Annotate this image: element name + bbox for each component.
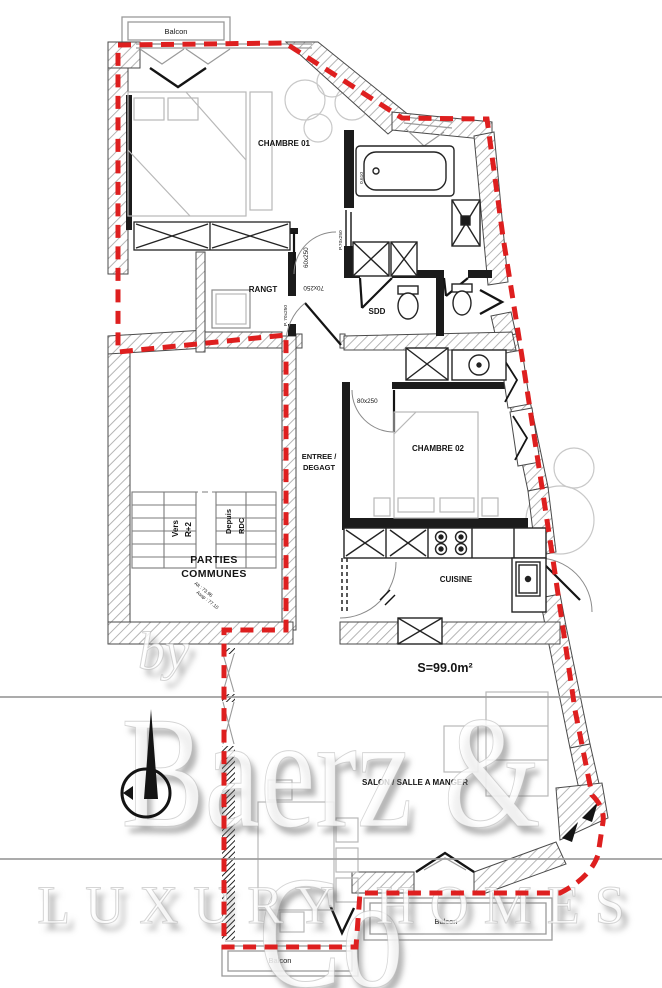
room-label-salon: SALON / SALLE A MANGER: [362, 778, 468, 787]
room-label-balcon-bottom-right: Balcon: [435, 917, 458, 926]
room-label-cuisine: CUISINE: [440, 575, 473, 584]
door-dim-rangt: P. 70x250: [283, 305, 289, 326]
stairs-label-depuis: Depuis: [224, 509, 233, 534]
door-dim-bath: P.70x250: [338, 230, 344, 250]
stairs-label-vers: Vers: [171, 520, 180, 537]
room-label-balcon-bottom-left: Balcon: [269, 956, 292, 965]
floorplan-page: Balcon CHAMBRE 01 RANGT SDD ENTREE / DEG…: [0, 0, 662, 988]
vanity-basin-icon: [452, 350, 506, 380]
room-label-rangt: RANGT: [249, 285, 278, 294]
bed-chambre02-icon: [374, 412, 498, 518]
door-dim-entry: 70x250: [303, 284, 324, 291]
north-arrow-icon: [115, 705, 185, 827]
room-label-chambre01: CHAMBRE 01: [258, 139, 311, 148]
sink-icon: [516, 562, 540, 596]
bathtub-icon: [356, 146, 454, 196]
stairs-label-r2: R+2: [184, 522, 193, 537]
kitchen-counter: [344, 528, 546, 612]
toilet-icon: [398, 286, 418, 319]
room-label-balcon-top: Balcon: [165, 27, 188, 36]
dressing-closet-icon: [406, 348, 448, 380]
door-dim-chambre01: 60x250: [303, 247, 310, 268]
floorplan-drawing: Balcon CHAMBRE 01 RANGT SDD ENTREE / DEG…: [0, 0, 662, 988]
balcony-door-icon: [150, 68, 206, 87]
bed-chambre01-icon: [128, 92, 272, 216]
tub-dim-label: 0.610: [359, 172, 365, 184]
toilet-icon-2: [452, 284, 472, 315]
watermark-line-bottom: [0, 858, 662, 860]
room-label-entree-1: ENTREE /: [302, 452, 338, 461]
washing-machine-icon: [452, 200, 480, 246]
bath-shaft-icon: [353, 242, 417, 276]
room-label-chambre02: CHAMBRE 02: [412, 444, 465, 453]
radiator-icon: [398, 618, 442, 644]
dining-table-icon: [258, 780, 358, 932]
room-label-parties-1: PARTIES: [190, 554, 238, 566]
wardrobe-icon: [134, 222, 290, 250]
room-label-parties-2: COMMUNES: [181, 568, 247, 580]
watermark-line-top: [0, 696, 662, 698]
balcony-bottom-right: [364, 898, 552, 940]
room-label-entree-2: DEGAGT: [303, 463, 336, 472]
rangt-closet-icon: [212, 290, 250, 328]
room-label-sdd: SDD: [369, 307, 386, 316]
surface-area-label: S=99.0m²: [417, 661, 472, 675]
stairs-label-rdc: RDC: [237, 517, 246, 534]
wc-window-icon: [480, 290, 502, 314]
door-dim-chambre02: 80x250: [357, 398, 378, 405]
